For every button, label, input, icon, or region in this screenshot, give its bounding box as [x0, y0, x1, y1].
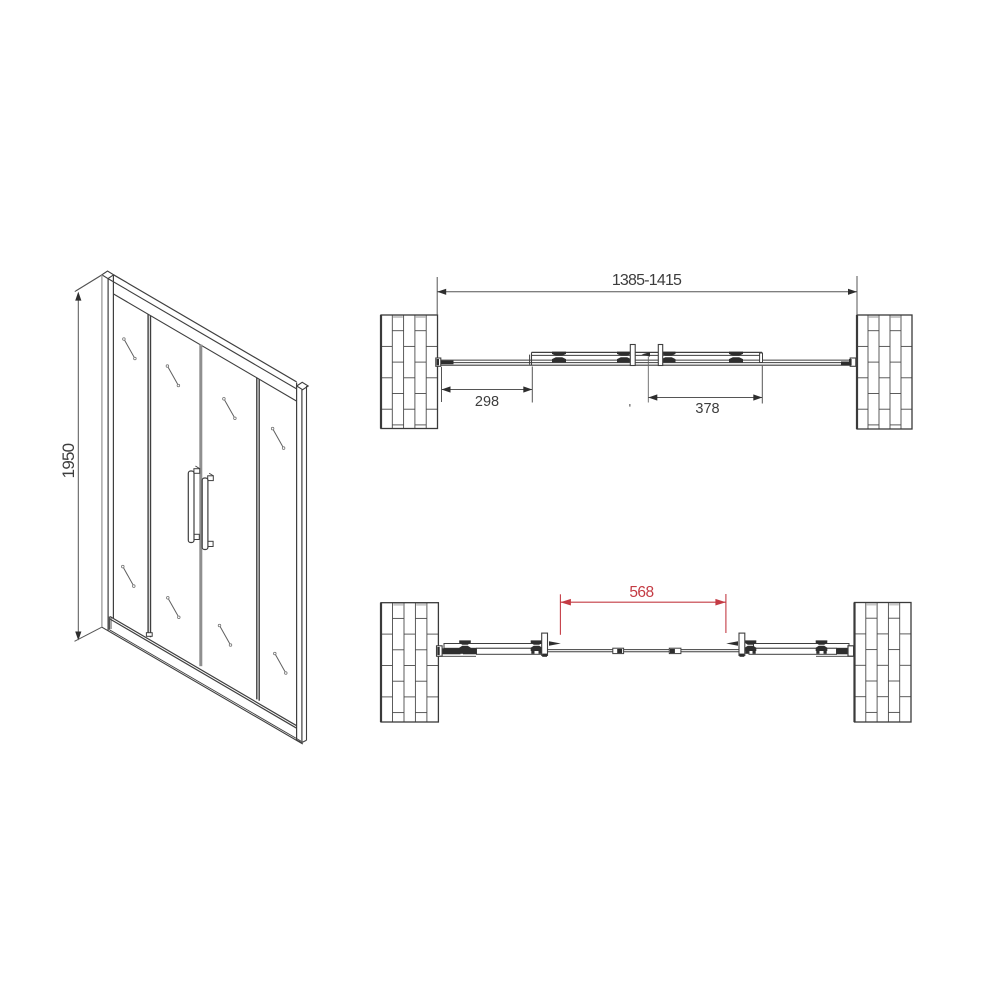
svg-text:1950: 1950 — [59, 443, 78, 478]
svg-text:378: 378 — [695, 401, 719, 417]
svg-text:298: 298 — [475, 394, 499, 410]
svg-text:568: 568 — [629, 584, 653, 601]
svg-text:1385-1415: 1385-1415 — [612, 272, 682, 289]
